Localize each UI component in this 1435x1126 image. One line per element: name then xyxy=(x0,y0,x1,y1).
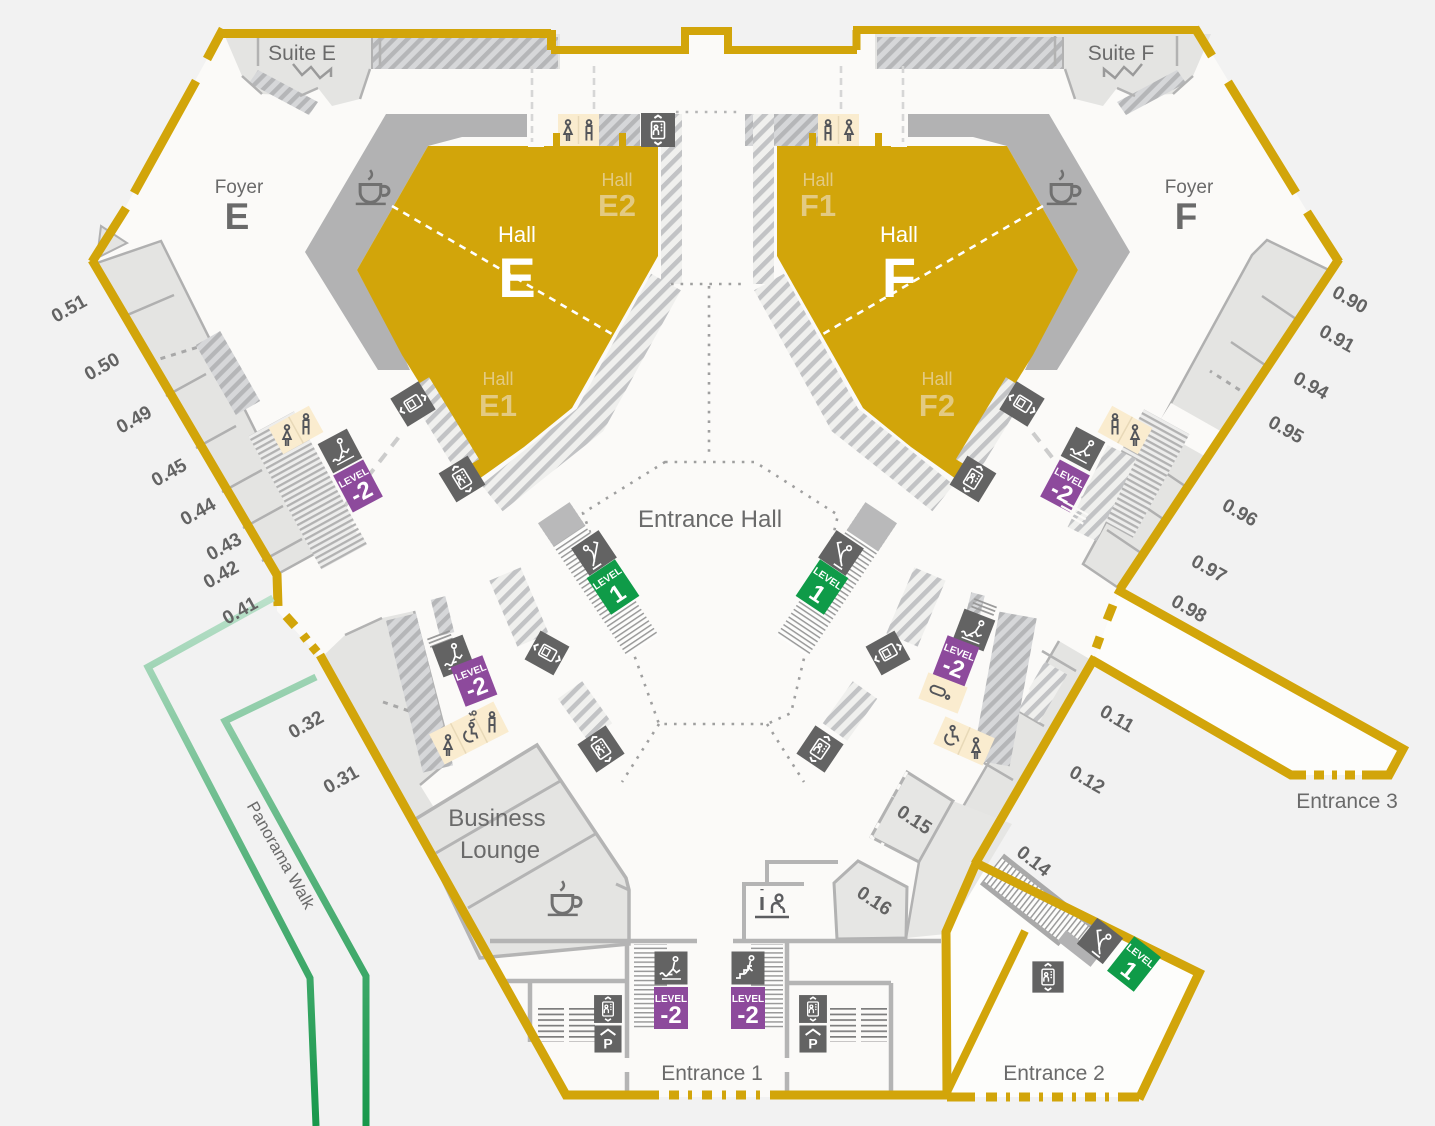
svg-text:E: E xyxy=(498,246,535,309)
svg-text:Hall: Hall xyxy=(601,170,632,190)
svg-text:Entrance 1: Entrance 1 xyxy=(661,1062,763,1085)
svg-text:E2: E2 xyxy=(598,188,636,223)
svg-text:F: F xyxy=(882,246,916,309)
svg-text:Entrance 2: Entrance 2 xyxy=(1003,1062,1105,1085)
svg-text:F1: F1 xyxy=(800,188,836,223)
svg-text:Business: Business xyxy=(448,805,545,832)
svg-text:Hall: Hall xyxy=(921,369,952,389)
svg-text:E: E xyxy=(225,196,250,237)
svg-text:Lounge: Lounge xyxy=(460,837,540,864)
svg-text:Suite E: Suite E xyxy=(268,42,336,65)
svg-text:Hall: Hall xyxy=(880,222,918,247)
svg-text:Hall: Hall xyxy=(482,369,513,389)
svg-text:Foyer: Foyer xyxy=(1165,177,1214,198)
svg-text:Entrance 3: Entrance 3 xyxy=(1296,790,1398,813)
svg-text:Foyer: Foyer xyxy=(215,177,264,198)
svg-text:E1: E1 xyxy=(479,388,517,423)
svg-text:Hall: Hall xyxy=(498,222,536,247)
svg-text:Suite F: Suite F xyxy=(1088,42,1155,65)
svg-text:Hall: Hall xyxy=(802,170,833,190)
svg-text:Entrance Hall: Entrance Hall xyxy=(638,506,782,533)
svg-text:F2: F2 xyxy=(919,388,955,423)
svg-text:F: F xyxy=(1175,196,1198,237)
